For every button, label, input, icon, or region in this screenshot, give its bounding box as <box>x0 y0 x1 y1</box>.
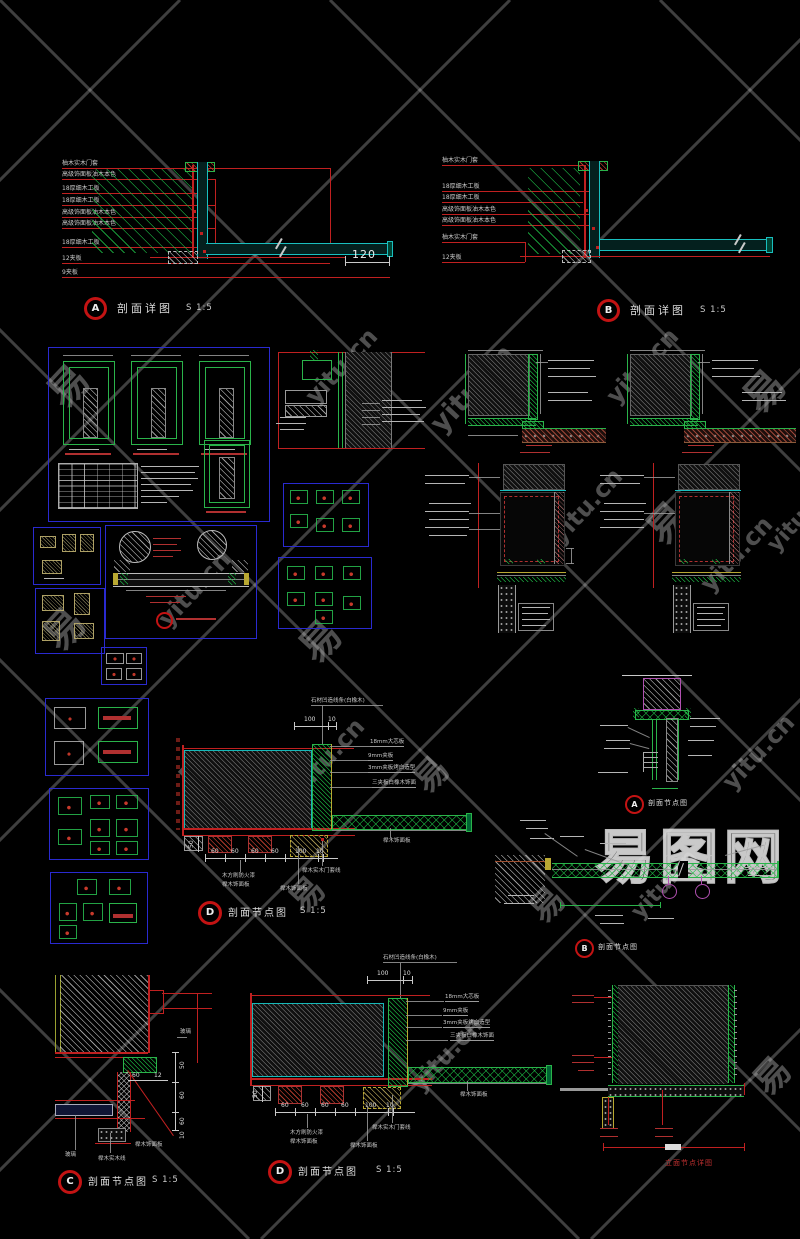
material-label: 9mm夹板 <box>368 753 393 761</box>
micro-detail <box>342 518 360 532</box>
dim-value-box <box>665 1144 681 1150</box>
micro-detail <box>109 903 137 923</box>
dim-text: 12 <box>154 1072 162 1079</box>
top-hatch <box>678 464 740 490</box>
axis-line <box>653 463 654 588</box>
elevation-unit-small <box>204 440 250 508</box>
leader <box>536 362 548 363</box>
bracket <box>302 360 332 380</box>
stone-hatch <box>252 1003 384 1077</box>
band-end <box>777 861 779 878</box>
frame-line <box>182 745 184 835</box>
micro-detail <box>116 795 138 809</box>
leader <box>330 760 368 761</box>
leader <box>390 828 391 838</box>
node-detail-d: 石材凹造线条(白橡木) 100 10 18mm大芯板 9mm夹板 3mm夹板烤白… <box>180 690 480 920</box>
micro-label <box>382 400 422 401</box>
micro-label <box>742 400 786 401</box>
micro-label <box>697 619 725 620</box>
panel-node-details <box>49 788 149 860</box>
leader-line <box>62 277 390 278</box>
leader <box>406 1001 444 1002</box>
detail-title: 剖面详图 <box>630 302 686 318</box>
dim-text: 60 <box>231 848 239 855</box>
micro-label <box>690 726 716 727</box>
caption-text-bar <box>137 449 167 450</box>
material-label: 柚木实木门套 <box>62 160 98 167</box>
detail-title: 立面节点详图 <box>665 1158 713 1168</box>
micro-detail <box>62 534 76 552</box>
micro-label <box>600 923 624 924</box>
micro-detail <box>342 490 360 504</box>
dim-text: 60 <box>251 848 259 855</box>
wall-hatch <box>630 354 692 416</box>
leader <box>362 403 380 404</box>
ceiling-line <box>622 675 692 676</box>
micro-detail <box>59 925 77 939</box>
dim-text: 10 <box>328 716 336 723</box>
glass-bar <box>55 1104 113 1116</box>
micro-detail <box>287 592 305 606</box>
side-column <box>554 492 564 564</box>
marker <box>596 246 599 249</box>
lamp-circle <box>695 884 710 899</box>
micro-label <box>280 429 304 430</box>
material-label: 榉木实木门套线 <box>302 868 341 874</box>
frame-line <box>250 993 252 1085</box>
stone-hatch <box>184 750 312 830</box>
glass-line <box>500 490 566 491</box>
line <box>55 1100 135 1101</box>
dim-line <box>131 355 181 356</box>
material-table <box>58 463 138 509</box>
dim-tick <box>275 1108 276 1116</box>
micro-detail <box>42 560 62 574</box>
micro-label-red <box>578 1070 594 1071</box>
dim-tick <box>603 1143 604 1151</box>
dim-tick <box>660 902 661 908</box>
micro-detail <box>316 518 334 532</box>
dim-line <box>468 350 543 351</box>
leader <box>322 840 323 866</box>
marker <box>193 210 196 213</box>
dim-line <box>275 1112 415 1113</box>
boxed-labels <box>518 603 554 631</box>
jamb-section <box>589 161 600 258</box>
micro-label-red <box>153 538 181 539</box>
micro-detail <box>42 621 60 641</box>
dim-line <box>294 726 336 727</box>
leader <box>177 1037 187 1038</box>
micro-label-red <box>572 995 594 996</box>
leader <box>467 1081 468 1091</box>
material-label: 三夹板白橡木饰面 <box>450 1033 494 1041</box>
leader <box>594 997 612 998</box>
leader <box>392 1095 393 1123</box>
micro-label <box>276 423 306 424</box>
material-label: 榉木饰面板 <box>383 838 411 844</box>
base-line <box>408 1083 546 1084</box>
dim-tick <box>265 854 266 862</box>
door-panel <box>83 388 98 438</box>
skirting-block <box>98 1128 126 1142</box>
dim-tick <box>172 1112 179 1113</box>
notes-text-bar <box>141 490 193 491</box>
leader <box>367 1107 368 1141</box>
masonry-column <box>673 585 691 633</box>
dim-line <box>199 355 249 356</box>
micro-detail <box>315 566 333 580</box>
end-hatch <box>228 573 236 585</box>
end-block <box>545 858 551 870</box>
notes-text-bar <box>141 496 179 497</box>
panel-node-details <box>283 483 369 547</box>
detail-title: 剖面节点图 <box>228 904 288 919</box>
dim-text: 60 <box>321 1102 329 1109</box>
micro-label <box>548 392 588 393</box>
top-label: 石材凹造线条(白橡木) <box>383 955 437 961</box>
micro-detail <box>40 536 56 548</box>
cad-sheet: 易 yitu.cn yitu.cn yitu.cn 易 易 yitu.cn yi… <box>0 0 800 1239</box>
void-dashed <box>679 496 734 562</box>
material-label: 榉木饰面板 <box>460 1092 488 1098</box>
masonry-column <box>498 585 516 633</box>
micro-label <box>604 748 630 749</box>
dim-text: 50 <box>252 1090 259 1098</box>
caption-underline <box>95 1143 131 1144</box>
leader <box>362 417 380 418</box>
base-line <box>497 572 566 573</box>
dim-text: 10 <box>179 1131 186 1139</box>
micro-detail <box>116 819 138 837</box>
base-line <box>672 572 741 573</box>
notes-text-bar <box>141 466 199 467</box>
notes-text-bar <box>141 478 198 479</box>
dim-line <box>468 435 518 436</box>
micro-label-red <box>572 1055 594 1056</box>
wall-wedge <box>114 560 130 572</box>
detail-scale: S 1:5 <box>152 1175 179 1185</box>
detail-title: 剖面详图 <box>117 300 173 316</box>
base-block <box>562 250 591 263</box>
floor-strip <box>684 428 796 443</box>
dim-text: 100 <box>304 716 315 723</box>
detail-title: 剖面节点图 <box>88 1173 148 1188</box>
dim-tick <box>345 256 346 266</box>
micro-detail <box>290 514 308 528</box>
micro-detail <box>287 566 305 580</box>
top-label: 石材凹造线条(白橡木) <box>311 698 365 704</box>
micro-label <box>548 360 594 361</box>
dim-tick <box>367 976 368 984</box>
micro-label-red <box>572 1002 594 1003</box>
material-label: 高级饰面板油木本色 <box>442 206 496 213</box>
frame-member <box>388 998 408 1087</box>
micro-label <box>600 843 626 844</box>
fill <box>103 716 131 720</box>
face-line <box>678 718 679 780</box>
micro-label <box>382 421 424 422</box>
boxed-labels <box>693 603 729 631</box>
dim-line <box>652 788 678 789</box>
dim-text: 120 <box>352 248 376 261</box>
micro-label <box>712 368 754 369</box>
clip <box>537 559 545 564</box>
clip <box>633 708 639 720</box>
micro-label-red <box>655 1136 673 1137</box>
elevation-unit <box>131 361 183 445</box>
dim-tick <box>318 854 319 862</box>
dim-text: 60 <box>341 1102 349 1109</box>
dim-tick <box>294 722 295 730</box>
caption-underline <box>176 618 216 620</box>
panel-plan-detail <box>105 525 257 639</box>
end-hatch <box>120 573 128 585</box>
detail-callout <box>156 612 173 629</box>
leader-line <box>525 242 526 262</box>
micro-detail <box>343 596 361 610</box>
leader <box>644 477 675 478</box>
leader <box>330 787 372 788</box>
leader <box>698 362 710 363</box>
leader <box>469 477 500 478</box>
lamp-stem <box>668 876 669 884</box>
micro-label <box>606 740 630 741</box>
micro-label-red <box>600 1136 618 1137</box>
micro-label-red <box>688 445 714 446</box>
leader <box>322 706 323 744</box>
micro-label-red <box>150 602 180 603</box>
micro-detail <box>80 534 94 552</box>
micro-label-red <box>153 550 181 551</box>
jamb-column <box>117 1072 131 1132</box>
clip <box>680 559 688 564</box>
detail-scale: S 1:5 <box>300 906 327 916</box>
leader <box>362 424 380 425</box>
detail-scale: S 1:5 <box>700 305 727 315</box>
micro-label <box>522 619 550 620</box>
clip <box>310 350 318 360</box>
dim-tick <box>335 1108 336 1116</box>
panel-hatch <box>618 985 728 1084</box>
material-label: 9mm夹板 <box>443 1008 468 1016</box>
dim-tick <box>566 548 574 549</box>
micro-label <box>548 400 592 401</box>
cove-shelf <box>643 752 658 772</box>
dim-tick <box>744 1083 745 1095</box>
marker <box>200 232 203 235</box>
leader-line <box>330 168 331 244</box>
micro-label <box>742 392 782 393</box>
dim-line <box>367 980 412 981</box>
panel-node-details <box>50 872 148 944</box>
node-detail-a: A 剖面节点图 <box>590 655 800 815</box>
leader <box>75 1115 76 1150</box>
glass-line <box>675 490 741 491</box>
micro-detail <box>74 623 94 639</box>
material-label: 榉木实木线 <box>98 1156 126 1162</box>
detail-callout-d: D <box>268 1160 292 1184</box>
leader <box>644 513 675 514</box>
side-column <box>729 492 739 564</box>
micro-label <box>425 483 465 484</box>
dim-tick <box>355 1108 356 1116</box>
band-centerline <box>552 869 777 870</box>
detail-title: 剖面节点图 <box>648 798 688 808</box>
micro-label <box>690 718 720 719</box>
micro-label <box>595 915 623 916</box>
dim-line <box>630 350 705 351</box>
panel-hardware-details <box>35 588 105 654</box>
micro-detail <box>290 490 308 504</box>
leader <box>298 846 299 884</box>
leader <box>307 1114 308 1128</box>
micro-label <box>697 607 725 608</box>
material-label: 高级饰面板油木本色 <box>442 217 496 224</box>
notes-text-bar <box>141 484 191 485</box>
frame-line <box>342 352 343 448</box>
leader <box>469 513 500 514</box>
top-line <box>250 995 430 996</box>
frame-line <box>338 352 339 448</box>
material-label: 18厚细木工板 <box>442 194 480 201</box>
dim-text: 60 <box>179 1117 186 1125</box>
detail-callout-b: B <box>575 939 594 958</box>
micro-label <box>504 903 534 904</box>
micro-detail <box>343 566 361 580</box>
tick-column <box>734 990 737 1080</box>
micro-label <box>425 527 469 528</box>
material-label: 三夹板白橡木饰面 <box>372 780 416 788</box>
micro-label-red <box>520 452 550 453</box>
micro-label <box>600 725 628 726</box>
material-label: 柚木实木门套 <box>442 157 478 164</box>
dim-text: 50 <box>179 1061 186 1069</box>
panel-end-cap <box>466 813 472 832</box>
dim-line <box>571 548 572 564</box>
axis-line <box>478 463 479 588</box>
leader <box>330 746 370 747</box>
leader-line <box>215 179 216 250</box>
micro-detail <box>98 741 138 763</box>
leader <box>725 845 764 856</box>
dim-line <box>126 590 226 591</box>
micro-label <box>522 613 548 614</box>
dim-line <box>262 1086 263 1102</box>
micro-detail <box>54 707 86 729</box>
dim-text: 100 <box>377 970 388 977</box>
end-block <box>113 573 118 585</box>
leader-line <box>162 993 212 994</box>
micro-label <box>44 578 64 579</box>
micro-label <box>688 740 714 741</box>
leader <box>330 772 368 773</box>
detail-callout-a: A <box>84 297 107 320</box>
board-end-cap <box>766 237 773 253</box>
node-detail-d-bottom: 石材凹造线条(白橡木) 100 10 18mm大芯板 9mm夹板 3mm夹板烤白… <box>245 955 565 1185</box>
leader <box>630 743 650 749</box>
material-label: 柚木实木门套 <box>442 234 478 241</box>
leader-line <box>442 262 525 263</box>
leader <box>469 529 500 530</box>
node-detail-b: B 剖面节点图 <box>495 815 800 955</box>
dim-line <box>175 1052 176 1130</box>
leader-line <box>162 1008 212 1009</box>
micro-label <box>429 519 469 520</box>
micro-label-red <box>600 1128 618 1129</box>
micro-label <box>429 535 467 536</box>
micro-label <box>548 376 596 377</box>
wall-floor-detail <box>460 345 620 470</box>
dim-tick <box>172 1130 179 1131</box>
dim-tick <box>323 854 324 862</box>
panel-end-cap <box>546 1065 552 1085</box>
dim-text: 100 <box>295 848 306 855</box>
detail-title: 剖面节点图 <box>298 1163 358 1178</box>
micro-detail <box>315 592 333 606</box>
micro-detail <box>126 668 142 680</box>
micro-label <box>648 918 674 919</box>
caption-underline <box>133 453 179 455</box>
micro-label-red <box>153 544 177 545</box>
micro-detail <box>58 797 82 815</box>
panel-hatch <box>666 718 678 782</box>
leader <box>383 962 457 963</box>
base-band <box>608 1085 744 1097</box>
micro-label-red <box>655 1128 673 1129</box>
door-leaf-hatch <box>528 168 580 254</box>
micro-label <box>382 414 420 415</box>
caption-underline <box>65 453 111 455</box>
micro-label-red <box>146 596 186 597</box>
leader <box>662 1090 663 1125</box>
dim-text: 60 <box>301 1102 309 1109</box>
material-label: 9夹板 <box>62 269 78 276</box>
micro-label <box>688 755 712 756</box>
dim-text: 50 <box>188 840 195 848</box>
floor-strip <box>522 428 606 443</box>
clip <box>712 559 720 564</box>
micro-label <box>548 368 590 369</box>
dim-tick <box>560 902 561 908</box>
micro-label <box>560 836 584 837</box>
leader <box>594 1057 612 1058</box>
panel-hardware-details <box>33 527 101 585</box>
base-line <box>520 256 770 257</box>
detail-title: 剖面节点图 <box>598 942 638 952</box>
micro-label <box>600 483 640 484</box>
detail-circle <box>119 531 151 563</box>
frame <box>528 354 538 420</box>
dim-tick <box>172 1082 179 1083</box>
door-leaf-hatch <box>92 169 192 253</box>
dim-tick <box>285 854 286 862</box>
detail-scale: S 1:5 <box>186 303 213 313</box>
micro-detail <box>59 903 77 921</box>
micro-label <box>604 503 646 504</box>
fill <box>113 914 133 918</box>
notes-text-bar <box>141 502 167 503</box>
base-line <box>672 575 741 576</box>
cabinet-section <box>600 455 760 655</box>
detail-scale: S 1:5 <box>376 1165 403 1175</box>
micro-detail <box>116 841 138 855</box>
micro-label <box>508 895 534 896</box>
material-label: 3mm夹板烤白造型 <box>368 765 415 773</box>
material-label: 18mm大芯板 <box>445 994 479 1002</box>
shelf <box>285 390 327 404</box>
micro-detail <box>54 741 84 765</box>
